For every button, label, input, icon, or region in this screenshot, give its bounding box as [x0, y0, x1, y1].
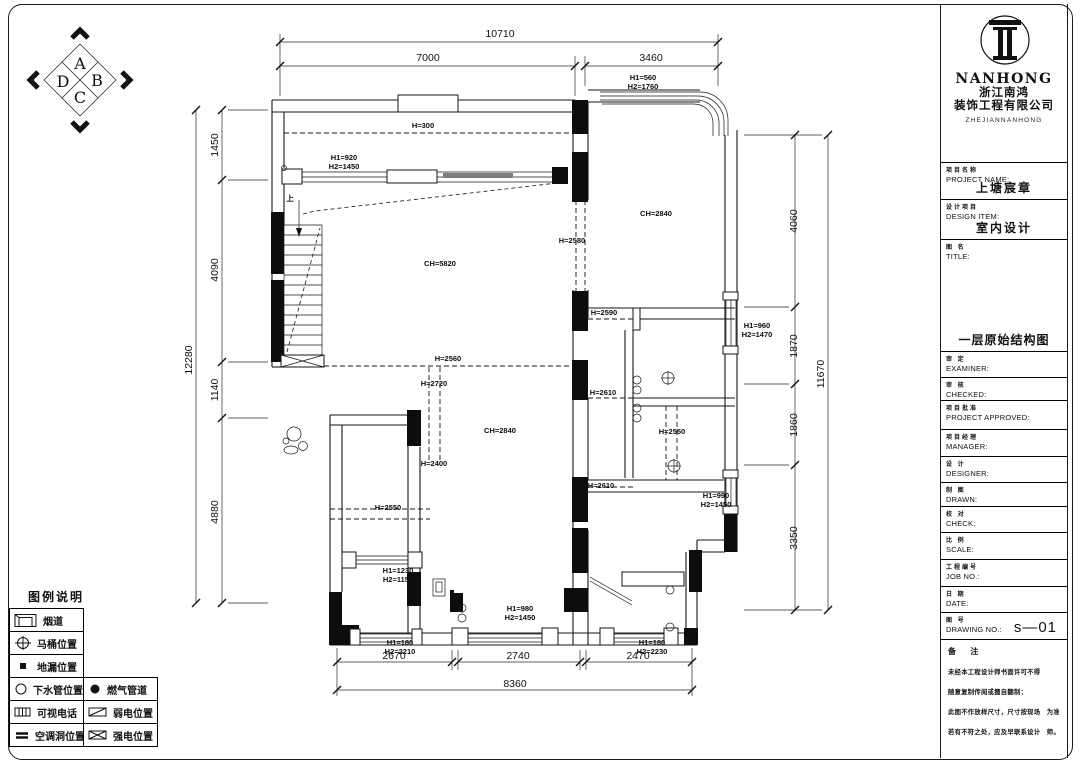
dim-label: 7000 — [416, 52, 440, 64]
field-scale: 比 例 SCALE: — [941, 533, 1067, 560]
dim-label: 1860 — [788, 413, 800, 437]
plan-label: H=2550 — [659, 427, 685, 436]
legend-item-flue: 烟道 — [9, 608, 84, 632]
dim-label: 2670 — [382, 650, 406, 662]
dim-label: 10710 — [485, 28, 514, 40]
plan-label: H=300 — [412, 121, 434, 130]
plan-label: H1=180 — [387, 638, 413, 647]
legend-item-weak-current: 弱电位置 — [83, 700, 158, 724]
plan-label: H1=980 — [507, 604, 533, 613]
plan-label: H1=960 — [744, 321, 770, 330]
dim-label: 12280 — [183, 345, 195, 374]
dim-label: 4880 — [209, 500, 221, 524]
note-line: 未经本工程设计师书面许可不得 — [948, 667, 1060, 676]
notes-section: 备 注 未经本工程设计师书面许可不得 随意复制传阅或擅自翻制： 此图不作放样尺寸… — [941, 640, 1067, 758]
field-design-item: 设计项目 DESIGN ITEM: 室内设计 — [941, 200, 1067, 240]
gas-pipe-icon — [88, 682, 102, 696]
plan-label: H=2560 — [435, 354, 461, 363]
legend-row: 地漏位置 — [10, 655, 162, 678]
floor-drain-icon — [14, 660, 32, 672]
notes-header: 备 注 — [948, 646, 1060, 657]
note-line: 若有不符之处，应及早联系设计 师。 — [948, 727, 1060, 736]
legend-row: 可视电话 弱电位置 — [10, 701, 162, 724]
field-manager: 项目经理 MANAGER: — [941, 430, 1067, 457]
company-logo — [941, 10, 1069, 68]
video-phone-icon — [14, 706, 32, 718]
field-designer: 设 计 DESIGNER: — [941, 457, 1067, 483]
plan-label: H2=1760 — [628, 82, 659, 91]
plan-label: H1=1230 — [383, 566, 414, 575]
stairs — [281, 200, 324, 367]
plan-label: H2=1450 — [701, 500, 732, 509]
plan-label: H2=1450 — [329, 162, 360, 171]
dim-label: 1140 — [209, 379, 221, 402]
weak-current-icon — [88, 706, 108, 718]
plan-label: 上 — [286, 193, 294, 203]
plan-label: H=2580 — [559, 236, 585, 245]
compass-letter: D — [57, 72, 70, 91]
plan-label: H1=990 — [703, 491, 729, 500]
legend-title: 图例说明 — [28, 588, 162, 605]
dim-label: 4090 — [209, 258, 221, 282]
drawing-sheet: ABCD — [0, 0, 1080, 764]
toilet-icon — [14, 635, 32, 651]
plan-label: H=2610 — [590, 388, 616, 397]
company-name-en: ZHEJIANNANHONG — [941, 117, 1067, 124]
bathroom-fixtures — [283, 371, 681, 631]
flue-icon — [14, 613, 38, 628]
plan-label: H=2590 — [591, 308, 617, 317]
dim-label: 8360 — [503, 678, 527, 690]
legend-item-gas-pipe: 燃气管道 — [83, 677, 158, 701]
title-block: NANHONG 浙江南鸿 装饰工程有限公司 ZHEJIANNANHONG 项目名… — [940, 4, 1068, 758]
legend-row: 烟道 — [10, 609, 162, 632]
plan-label: CH=2840 — [484, 426, 516, 435]
plan-label: H2=1470 — [742, 330, 773, 339]
plan-label: CH=5820 — [424, 259, 456, 268]
legend-item-video-phone: 可视电话 — [9, 700, 84, 724]
compass-letter: B — [91, 71, 103, 90]
plan-label: H2=1150 — [383, 575, 413, 584]
drain-pipe-icon — [14, 682, 28, 696]
legend-item-floor-drain: 地漏位置 — [9, 654, 84, 678]
legend-item-drain-pipe: 下水管位置 — [9, 677, 84, 701]
dim-label: 11670 — [815, 360, 827, 389]
dim-label: 2470 — [626, 650, 650, 662]
plan-label: H1=920 — [331, 153, 357, 162]
compass-letter: A — [73, 54, 86, 73]
plan-label: H1=180 — [639, 638, 665, 647]
ac-hole-icon — [14, 730, 30, 740]
field-drawn: 制 图 DRAWN: — [941, 483, 1067, 507]
field-examiner: 审 定 EXAMINER: — [941, 352, 1067, 378]
dim-label: 3460 — [639, 52, 663, 64]
note-line: 此图不作放样尺寸，尺寸按现场 为准 — [948, 707, 1060, 716]
beams — [284, 133, 677, 519]
company-name-cn-1: 浙江南鸿 — [941, 87, 1067, 100]
legend-item-toilet: 马桶位置 — [9, 631, 84, 655]
plan-label: H=2720 — [421, 379, 447, 388]
compass-letter: C — [74, 88, 86, 107]
dim-label: 1870 — [788, 334, 800, 358]
dim-label: 4060 — [788, 209, 800, 233]
legend-row: 空调洞位置 强电位置 — [10, 724, 162, 747]
field-project-approved: 项目批准 PROJECT APPROVED: — [941, 401, 1067, 430]
plan-label: H2=1450 — [505, 613, 536, 622]
drawing-number: s—01 — [1014, 619, 1057, 636]
field-project-name: 项目名称 PROJECT NAME: 上塘宸章 — [941, 163, 1067, 200]
field-title: 图 名 TITLE: 一层原始结构图 — [941, 240, 1067, 352]
legend-item-strong-current: 强电位置 — [83, 723, 158, 747]
legend-row: 马桶位置 — [10, 632, 162, 655]
dim-label: 3350 — [788, 526, 800, 550]
dim-label: 2740 — [506, 650, 530, 662]
legend: 图例说明 烟道 马桶位置 地漏位置 — [10, 588, 162, 747]
brand-name: NANHONG — [941, 71, 1067, 87]
legend-item-ac-hole: 空调洞位置 — [9, 723, 84, 747]
field-checked: 审 核 CHECKED: — [941, 378, 1067, 401]
project-name-value: 上塘宸章 — [941, 179, 1067, 196]
drawing-title: 一层原始结构图 — [941, 331, 1067, 348]
field-drawing-no: 图 号 DRAWING NO.: s—01 — [941, 613, 1067, 640]
legend-row: 下水管位置 燃气管道 — [10, 678, 162, 701]
field-check: 校 对 CHECK: — [941, 507, 1067, 533]
field-job-no: 工程编号 JOB NO.: — [941, 560, 1067, 587]
north-indicator: ABCD — [30, 30, 130, 130]
note-line: 随意复制传阅或擅自翻制： — [948, 687, 1060, 696]
plan-label: H=2400 — [421, 459, 447, 468]
plan-label: H=2550 — [375, 503, 401, 512]
strong-current-icon — [88, 729, 108, 741]
plan-label: H=2610 — [588, 481, 614, 490]
design-item-value: 室内设计 — [941, 219, 1067, 236]
field-date: 日 期 DATE: — [941, 587, 1067, 613]
company-brand: NANHONG 浙江南鸿 装饰工程有限公司 ZHEJIANNANHONG — [941, 4, 1067, 163]
plan-label: CH=2840 — [640, 209, 672, 218]
company-name-cn-2: 装饰工程有限公司 — [941, 100, 1067, 113]
dim-label: 1450 — [209, 133, 221, 157]
plan-label: H1=560 — [630, 73, 656, 82]
